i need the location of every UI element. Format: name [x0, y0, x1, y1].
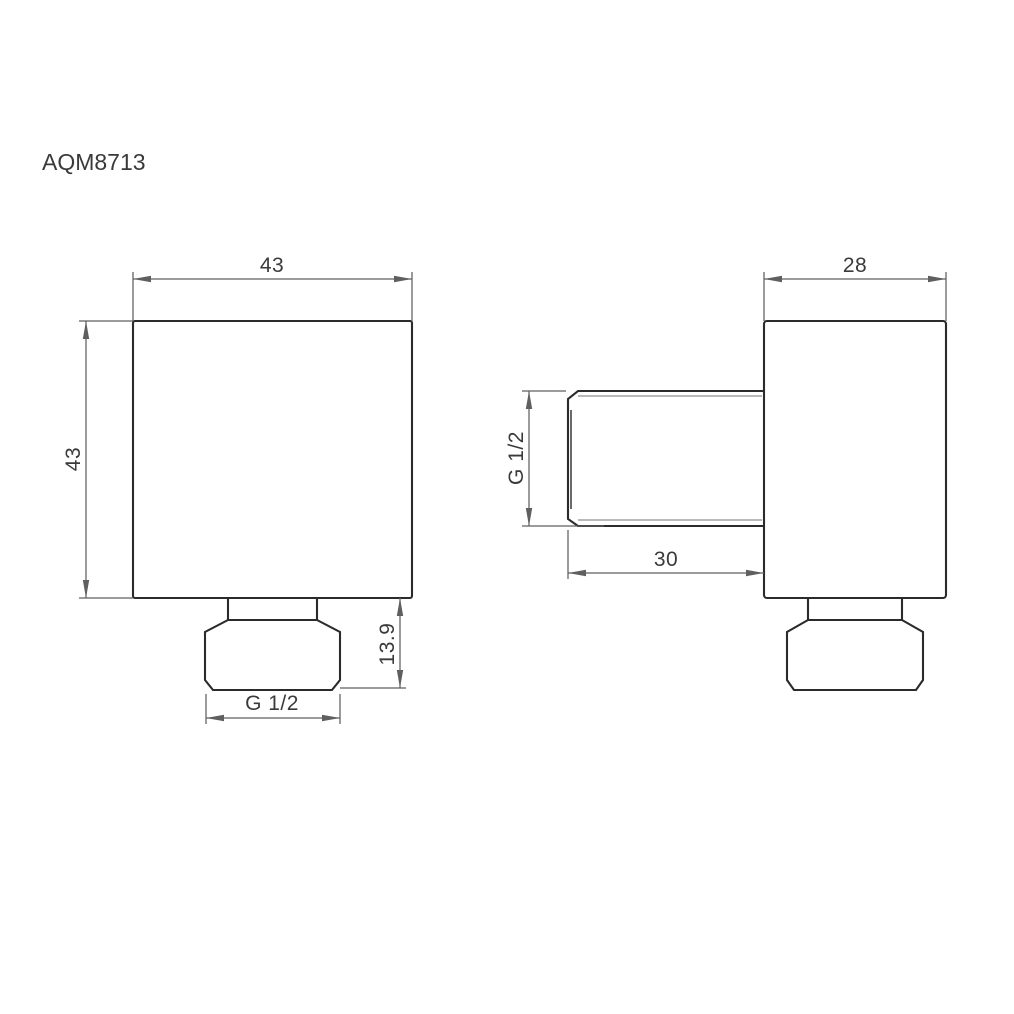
front-width-value: 43 — [260, 254, 284, 277]
side-width-value: 28 — [843, 254, 867, 277]
technical-drawing-page: AQM8713 43 43 13.9 — [0, 0, 1014, 1014]
side-width-dimension: 28 — [764, 254, 946, 321]
front-neck — [228, 598, 317, 620]
side-pipe-outline — [568, 391, 764, 526]
technical-drawing-canvas: AQM8713 43 43 13.9 — [0, 0, 1014, 1014]
arrow-left-icon — [764, 276, 782, 282]
front-hex-nut — [205, 620, 340, 690]
arrow-up-icon — [83, 321, 89, 339]
arrow-left-icon — [568, 570, 586, 576]
side-body-outline — [764, 321, 946, 598]
front-height-value: 43 — [62, 447, 85, 471]
side-hex-nut — [787, 620, 923, 690]
side-thread-value: G 1/2 — [505, 431, 528, 485]
front-height-dimension: 43 — [62, 321, 133, 598]
front-nut-height-dimension: 13.9 — [340, 598, 406, 688]
arrow-right-icon — [394, 276, 412, 282]
front-body-outline — [133, 321, 412, 598]
arrow-right-icon — [746, 570, 764, 576]
arrow-down-icon — [526, 508, 532, 526]
arrow-up-icon — [526, 391, 532, 409]
extension-lines — [79, 321, 133, 598]
front-nut-height-value: 13.9 — [376, 623, 399, 666]
side-pipe-length-dimension: 30 — [568, 530, 764, 579]
arrow-right-icon — [322, 715, 340, 721]
arrow-down-icon — [397, 670, 403, 688]
arrow-left-icon — [206, 715, 224, 721]
front-thread-dimension: G 1/2 — [206, 692, 340, 724]
front-width-dimension: 43 — [133, 254, 412, 321]
model-number-label: AQM8713 — [42, 149, 146, 175]
arrow-left-icon — [133, 276, 151, 282]
side-neck — [808, 598, 902, 620]
front-view — [133, 321, 412, 690]
side-view — [568, 321, 946, 690]
arrow-right-icon — [928, 276, 946, 282]
side-pipe-length-value: 30 — [654, 548, 678, 571]
front-thread-value: G 1/2 — [245, 692, 299, 715]
arrow-down-icon — [83, 580, 89, 598]
arrow-up-icon — [397, 598, 403, 616]
